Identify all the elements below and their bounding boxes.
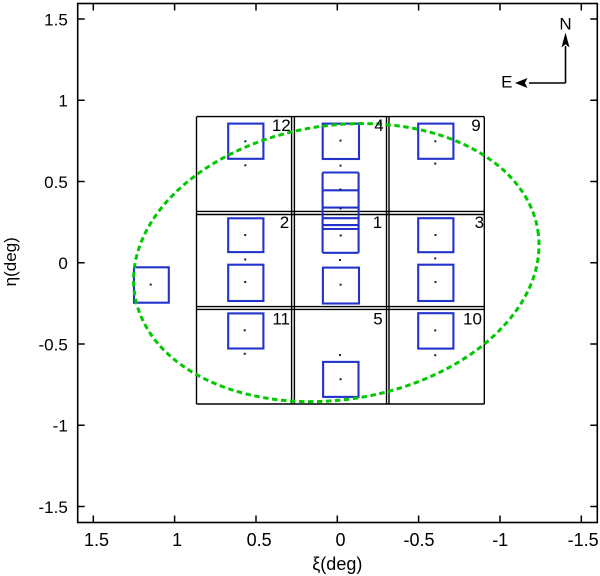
- svg-text:1: 1: [58, 92, 67, 111]
- svg-text:-1: -1: [53, 417, 68, 436]
- svg-text:4: 4: [374, 116, 383, 135]
- svg-text:2: 2: [280, 213, 289, 232]
- svg-text:0.5: 0.5: [247, 530, 272, 550]
- svg-text:9: 9: [471, 116, 480, 135]
- svg-text:ξ(deg): ξ(deg): [312, 554, 362, 574]
- svg-text:0.5: 0.5: [44, 173, 68, 192]
- svg-text:1.5: 1.5: [44, 10, 68, 29]
- svg-text:1: 1: [373, 213, 382, 232]
- svg-text:-0.5: -0.5: [39, 335, 68, 354]
- svg-text:-1.5: -1.5: [568, 530, 599, 550]
- svg-text:-1: -1: [492, 530, 508, 550]
- svg-text:5: 5: [373, 310, 382, 329]
- svg-text:E: E: [501, 73, 512, 92]
- svg-text:1.5: 1.5: [84, 530, 109, 550]
- svg-text:1: 1: [172, 530, 182, 550]
- svg-text:10: 10: [463, 310, 482, 329]
- svg-text:12: 12: [272, 116, 291, 135]
- svg-text:0: 0: [335, 530, 345, 550]
- svg-text:11: 11: [272, 310, 290, 329]
- svg-text:-0.5: -0.5: [403, 530, 434, 550]
- svg-text:3: 3: [475, 213, 484, 232]
- svg-text:-1.5: -1.5: [39, 498, 68, 517]
- svg-text:0: 0: [58, 254, 67, 273]
- svg-text:η(deg): η(deg): [1, 237, 20, 286]
- svg-text:N: N: [559, 15, 571, 34]
